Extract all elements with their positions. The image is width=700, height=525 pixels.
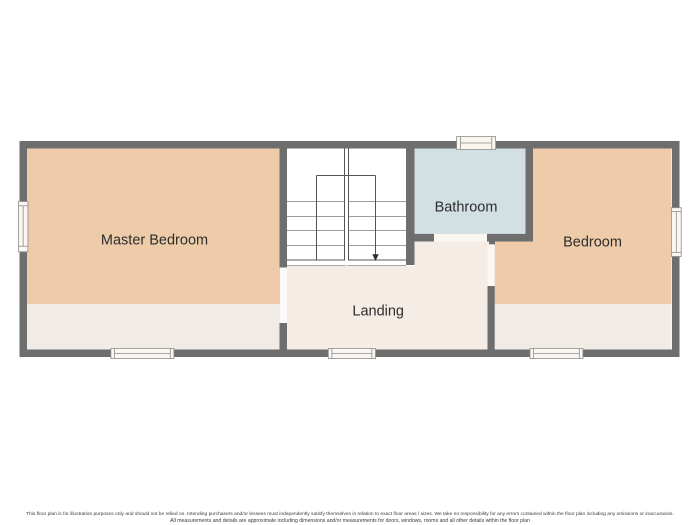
svg-text:Bathroom: Bathroom	[435, 199, 498, 215]
svg-text:Bedroom: Bedroom	[563, 234, 622, 250]
svg-text:Master Bedroom: Master Bedroom	[101, 233, 208, 249]
svg-text:This floor plan is for illustr: This floor plan is for illustration purp…	[26, 511, 674, 517]
svg-text:Landing: Landing	[352, 304, 404, 320]
svg-text:All measurements and details a: All measurements and details are approxi…	[170, 518, 530, 524]
